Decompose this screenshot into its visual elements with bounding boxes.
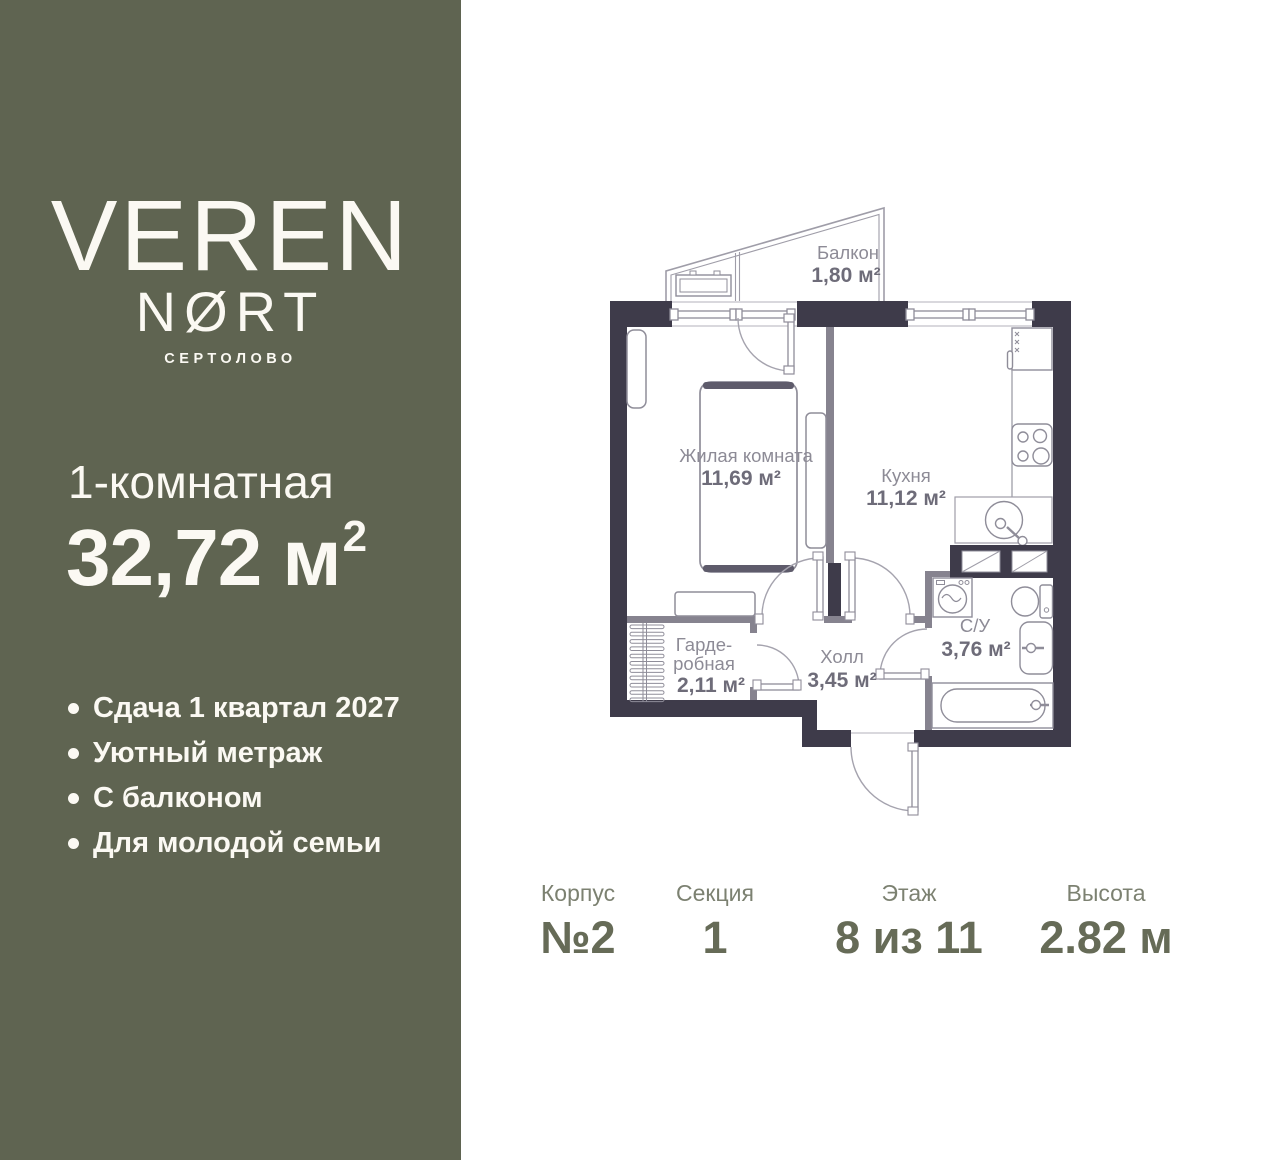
wash-basin [1020,622,1053,674]
room-label-kitchen: Кухня [881,467,931,486]
detail-label: Этаж [835,882,983,905]
side-table [806,413,826,548]
wardrobe-shelving [630,623,664,702]
washing-machine [933,578,972,617]
kitchen-door [845,552,914,624]
dresser [675,592,755,616]
balcony-door [738,314,794,374]
feature-label: С балконом [93,782,263,815]
entrance-door [851,733,918,815]
room-area-bathroom: 3,76 м² [941,639,1010,660]
room-label-wardrobe-line2: робная [673,655,735,674]
kitchen-window [906,309,1034,320]
apartment-area-value: 32,72 м [66,513,341,602]
room-label-hall: Холл [820,648,864,667]
stove [1012,424,1052,466]
room-label-living: Жилая комната [679,447,813,466]
bullet-dot-icon [68,748,79,759]
cabinet [627,330,646,408]
transom-window [950,545,1053,578]
sidebar-panel: VEREN NØRT СЕРТОЛОВО 1-комнатная 32,72 м… [0,0,461,1160]
feature-item: С балконом [68,776,400,821]
feature-label: Уютный метраж [93,737,322,770]
room-label-bathroom: С/У [960,617,990,636]
feature-label: Для молодой семьи [93,827,382,860]
feature-label: Сдача 1 квартал 2027 [93,692,400,725]
room-area-living: 11,69 м² [701,468,781,489]
bullet-dot-icon [68,793,79,804]
detail-value: 8 из 11 [835,915,983,960]
detail-label: Корпус [540,882,615,905]
bullet-dot-icon [68,703,79,714]
feature-item: Сдача 1 квартал 2027 [68,686,400,731]
apartment-type: 1-комнатная [68,459,334,505]
floorplan-drawing [600,195,1085,850]
detail-building: Корпус №2 [540,882,615,960]
detail-value: №2 [540,915,615,960]
kitchen-sink [955,497,1052,546]
room-area-hall: 3,45 м² [807,670,876,691]
detail-height: Высота 2.82 м [1039,882,1172,960]
logo-subtitle: СЕРТОЛОВО [0,352,461,367]
room-label-balcony: Балкон [817,244,879,263]
feature-list: Сдача 1 квартал 2027 Уютный метраж С бал… [68,686,400,866]
detail-label: Высота [1039,882,1172,905]
fridge [1008,328,1053,370]
balcony-ac-unit [676,271,731,296]
detail-section: Секция 1 [676,882,754,960]
room-area-kitchen: 11,12 м² [866,488,946,509]
feature-item: Для молодой семьи [68,821,400,866]
detail-label: Секция [676,882,754,905]
toilet [1012,585,1053,618]
room-area-balcony: 1,80 м² [811,265,880,286]
room-label-wardrobe-line1: Гарде- [676,636,732,655]
bullet-dot-icon [68,838,79,849]
apartment-area-sup: 2 [343,512,366,561]
feature-item: Уютный метраж [68,731,400,776]
living-window [670,309,795,320]
bathroom-door [876,629,929,679]
room-area-wardrobe: 2,11 м² [677,675,745,696]
detail-value: 1 [676,915,754,960]
logo-veren: VEREN [0,186,461,286]
detail-floor: Этаж 8 из 11 [835,882,983,960]
detail-value: 2.82 м [1039,915,1172,960]
logo-nort: NØRT [0,284,461,340]
wardrobe-door [753,645,801,690]
bathtub [932,683,1053,728]
apartment-area: 32,72 м2 [66,518,364,598]
